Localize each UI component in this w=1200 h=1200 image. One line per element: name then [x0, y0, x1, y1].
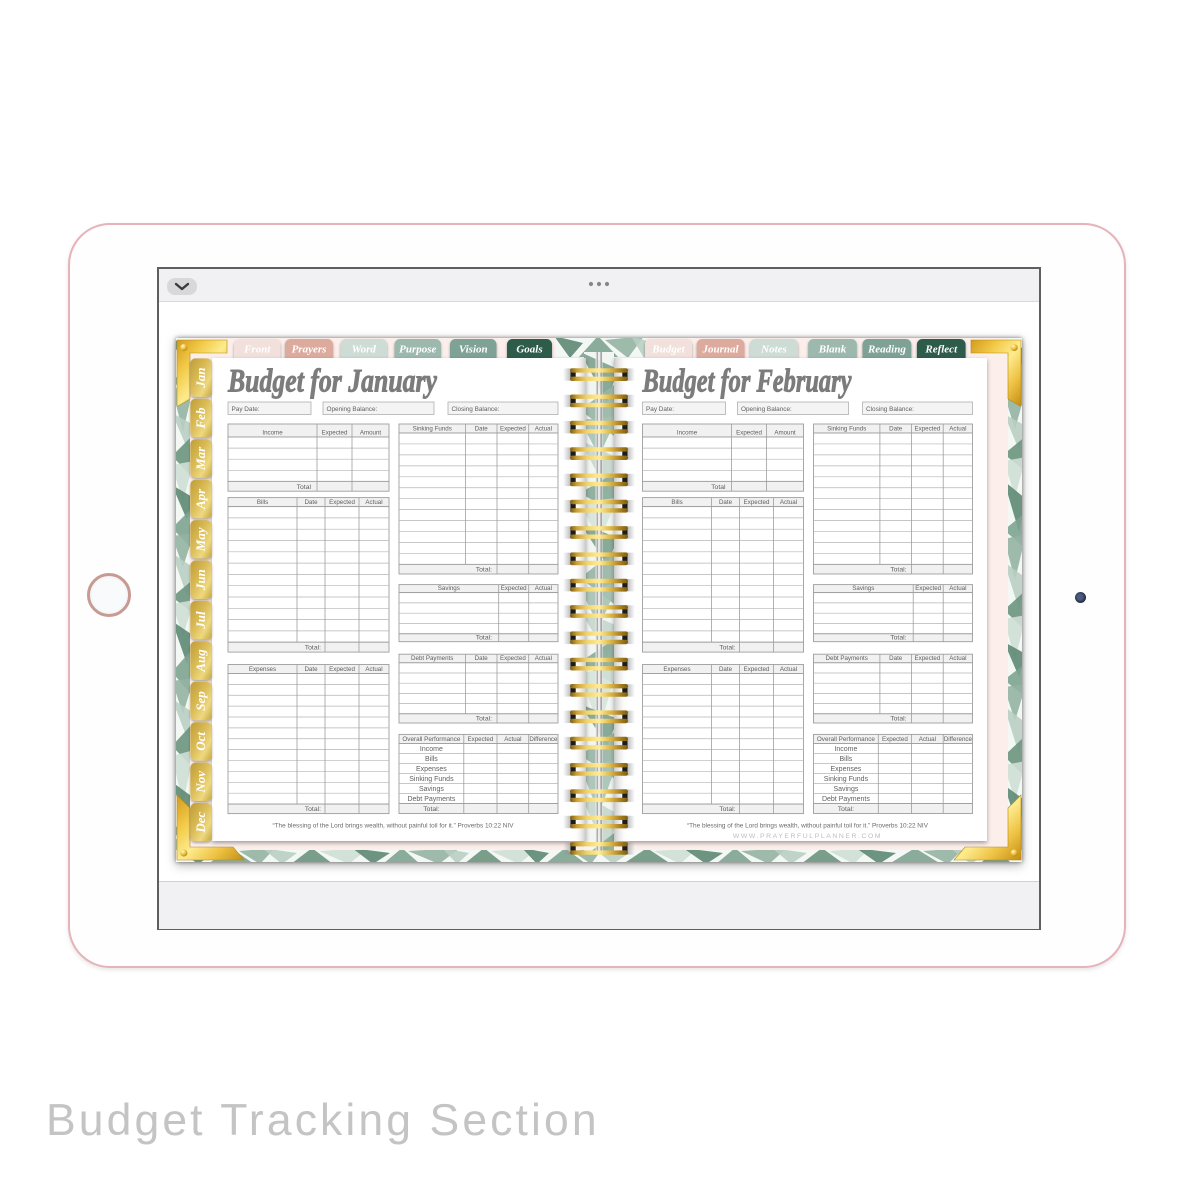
svg-text:Reading: Reading: [867, 344, 906, 356]
svg-text:Mar: Mar: [193, 446, 208, 471]
svg-text:Jul: Jul: [193, 611, 208, 630]
svg-text:Budget for February: Budget for February: [642, 364, 852, 400]
svg-text:Word: Word: [352, 344, 377, 356]
svg-text:Sep: Sep: [193, 691, 208, 711]
svg-text:Vision: Vision: [459, 344, 488, 356]
svg-text:Purpose: Purpose: [399, 344, 436, 356]
svg-text:Oct: Oct: [193, 732, 208, 751]
svg-text:Goals: Goals: [516, 344, 542, 356]
svg-text:WWW.PRAYERFULPLANNER.COM: WWW.PRAYERFULPLANNER.COM: [733, 833, 882, 840]
svg-text:Budget: Budget: [651, 344, 685, 356]
svg-text:Notes: Notes: [760, 344, 787, 356]
svg-text:Journal: Journal: [702, 344, 740, 356]
svg-text:Budget for January: Budget for January: [227, 364, 437, 400]
svg-text:Prayers: Prayers: [292, 344, 327, 356]
svg-text:Blank: Blank: [818, 344, 847, 356]
svg-text:Aug: Aug: [193, 649, 208, 673]
svg-text:Front: Front: [243, 344, 271, 356]
svg-text:May: May: [193, 527, 208, 552]
svg-text:Feb: Feb: [193, 407, 208, 429]
svg-text:Nov: Nov: [193, 771, 208, 794]
svg-text:Jan: Jan: [193, 367, 208, 388]
svg-text:Reflect: Reflect: [924, 344, 958, 356]
svg-text:Jun: Jun: [193, 569, 208, 591]
svg-text:Dec: Dec: [193, 812, 208, 834]
svg-text:Apr: Apr: [193, 488, 208, 510]
